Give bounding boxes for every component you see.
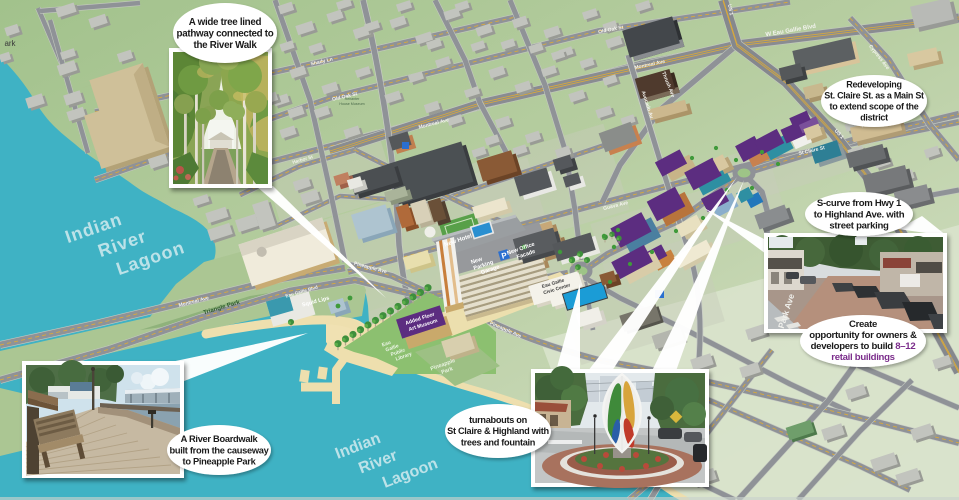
- svg-text:Redeveloping: Redeveloping: [846, 80, 901, 90]
- svg-text:the River Walk: the River Walk: [194, 40, 258, 51]
- svg-text:to extend scope of the: to extend scope of the: [830, 102, 919, 112]
- svg-text:A wide tree lined: A wide tree lined: [189, 17, 262, 28]
- svg-text:opportunity for owners &: opportunity for owners &: [809, 330, 917, 341]
- svg-text:ark: ark: [4, 39, 16, 48]
- svg-text:pathway connected to: pathway connected to: [177, 28, 274, 39]
- svg-text:House Museum: House Museum: [339, 102, 364, 106]
- svg-text:district: district: [860, 113, 888, 123]
- svg-text:developers to build 8–12: developers to build 8–12: [811, 341, 916, 352]
- svg-text:S-curve from Hwy 1: S-curve from Hwy 1: [817, 198, 902, 209]
- svg-text:street parking: street parking: [829, 221, 889, 232]
- svg-text:trees and fountain: trees and fountain: [461, 438, 536, 448]
- svg-text:built from the causeway: built from the causeway: [169, 445, 269, 455]
- svg-text:Create: Create: [849, 319, 877, 330]
- svg-text:to Highland Ave. with: to Highland Ave. with: [814, 209, 905, 220]
- svg-text:St. Claire St. as a Main St: St. Claire St. as a Main St: [824, 91, 924, 101]
- svg-text:turnabouts on: turnabouts on: [469, 415, 528, 425]
- svg-text:Renanter: Renanter: [345, 97, 361, 101]
- svg-text:retail buildings: retail buildings: [831, 352, 894, 363]
- svg-text:St Claire & Highland with: St Claire & Highland with: [447, 426, 549, 436]
- svg-text:A River Boardwalk: A River Boardwalk: [181, 434, 259, 444]
- svg-text:to Pineapple Park: to Pineapple Park: [183, 457, 257, 467]
